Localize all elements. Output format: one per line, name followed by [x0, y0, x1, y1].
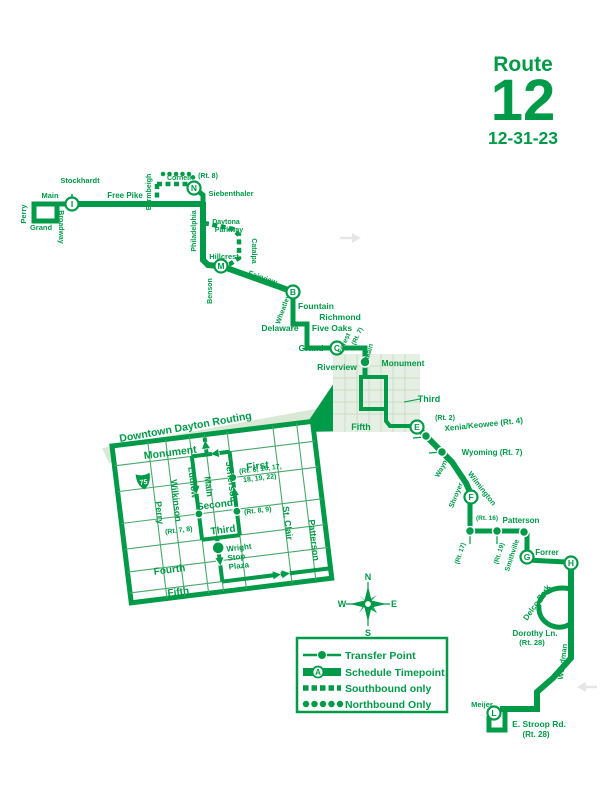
transfer-patterson: [493, 527, 502, 536]
label-wayne: Wayne: [434, 456, 451, 479]
route-number: 12: [491, 68, 556, 133]
label-stroop: E. Stroop Rd.: [512, 719, 566, 729]
label-forest-route: (Rt. 7): [351, 327, 365, 347]
svg-text:G: G: [524, 552, 531, 562]
header: Route 12 12-31-23: [488, 53, 558, 148]
label-fountain: Fountain: [298, 301, 334, 311]
transfer-xenia-keowee: [422, 432, 431, 441]
svg-text:H: H: [568, 558, 574, 568]
label-bermbeigh: Bermbeigh: [146, 174, 153, 211]
label-daytona: Daytona: [212, 219, 240, 226]
label-monument: Monument: [382, 358, 425, 368]
label-stockhardt: Stockhardt: [60, 176, 100, 185]
timepoint-E: E: [411, 421, 424, 434]
transfer-wyoming: [438, 448, 447, 457]
label-meijer: Meijer: [471, 700, 493, 709]
label-catalpa: Catalpa: [250, 238, 257, 263]
legend-transfer-dot: [318, 651, 327, 660]
label-delaware: Delaware: [261, 323, 299, 333]
compass-north: N: [365, 572, 372, 582]
label-grand: Grand: [298, 343, 323, 353]
timepoint-F: F: [465, 491, 478, 504]
route-date: 12-31-23: [488, 128, 558, 148]
timepoint-M: M: [215, 260, 228, 273]
label-grand-nw: Grand: [30, 223, 53, 232]
direction-arrow-east: [340, 233, 361, 243]
label-five-oaks: Five Oaks: [312, 323, 352, 333]
legend-northbound-label: Northbound Only: [345, 699, 431, 711]
label-broadway: Broadway: [57, 210, 64, 244]
legend-timepoint-letter: A: [315, 668, 321, 677]
timepoint-H: H: [565, 557, 578, 570]
label-patterson: Patterson: [503, 516, 540, 525]
label-wheatley: Wheatley: [275, 294, 292, 325]
compass-east: E: [391, 599, 397, 609]
svg-text:I: I: [71, 199, 73, 209]
label-smithville-route: (Rt. 19): [493, 542, 506, 565]
label-perry: Perry: [19, 204, 28, 224]
interstate-75-label: 75: [139, 479, 148, 487]
svg-text:F: F: [468, 492, 473, 502]
timepoint-G: G: [521, 551, 534, 564]
svg-text:E: E: [414, 422, 420, 432]
label-philadelphia: Philadelphia: [191, 210, 198, 251]
legend-southbound-label: Southbound only: [345, 683, 431, 695]
timepoint-I: I: [66, 198, 79, 211]
svg-text:L: L: [491, 708, 496, 718]
label-shroyer: Shroyer: [448, 482, 465, 509]
label-free-pike: Free Pike: [107, 191, 143, 200]
legend-timepoint-label: Schedule Timepoint: [345, 667, 445, 679]
transfer-smithville: [520, 528, 529, 537]
label-cornell: Cornell: [167, 175, 191, 182]
svg-text:N: N: [191, 183, 197, 193]
label-hillcrest: Hillcrest: [209, 252, 239, 261]
svg-text:M: M: [217, 261, 224, 271]
compass-south: S: [365, 628, 371, 638]
label-stroop-route: (Rt. 28): [522, 730, 549, 739]
label-richmond: Richmond: [319, 312, 361, 322]
label-dorothy-ln: Dorothy Ln.: [513, 629, 558, 638]
route-map: 75 Monument: [0, 0, 612, 792]
label-shroyer-route: (Rt. 17): [454, 542, 467, 565]
label-main-nw: Main: [41, 191, 59, 200]
label-patterson-route: (Rt. 16): [476, 515, 498, 522]
compass-rose: N E S W: [338, 572, 397, 638]
label-siebenthaler: Siebenthaler: [208, 189, 253, 198]
label-wyoming: Wyoming (Rt. 7): [462, 448, 523, 457]
label-forrer: Forrer: [535, 548, 559, 557]
label-parkway: Parkway: [215, 227, 244, 234]
route-map-page: 75 Monument: [0, 0, 612, 792]
compass-west: W: [338, 599, 347, 609]
label-xenia-keowee: Xenia/Keowee (Rt. 4): [444, 416, 524, 433]
label-cornell-route: (Rt. 8): [198, 173, 218, 180]
label-riverview: Riverview: [317, 362, 357, 372]
legend: Transfer Point A Schedule Timepoint Sout…: [297, 638, 447, 712]
timepoint-N: N: [188, 182, 201, 195]
label-benson: Benson: [207, 278, 214, 304]
label-fifth: Fifth: [351, 422, 371, 432]
label-dorothy-route: (Rt. 28): [519, 638, 545, 647]
label-smithville: Smithville: [504, 539, 521, 573]
label-third-route: (Rt. 2): [435, 415, 455, 422]
label-delco-park: Delco Park: [521, 583, 552, 622]
wright-stop-plaza-dot: [212, 541, 225, 554]
transfer-shroyer: [466, 527, 475, 536]
label-third: Third: [418, 394, 441, 404]
downtown-inset: 75 Monument: [112, 421, 332, 603]
direction-arrow-west: [577, 682, 597, 692]
legend-transfer-label: Transfer Point: [345, 650, 416, 662]
svg-text:B: B: [290, 287, 296, 297]
